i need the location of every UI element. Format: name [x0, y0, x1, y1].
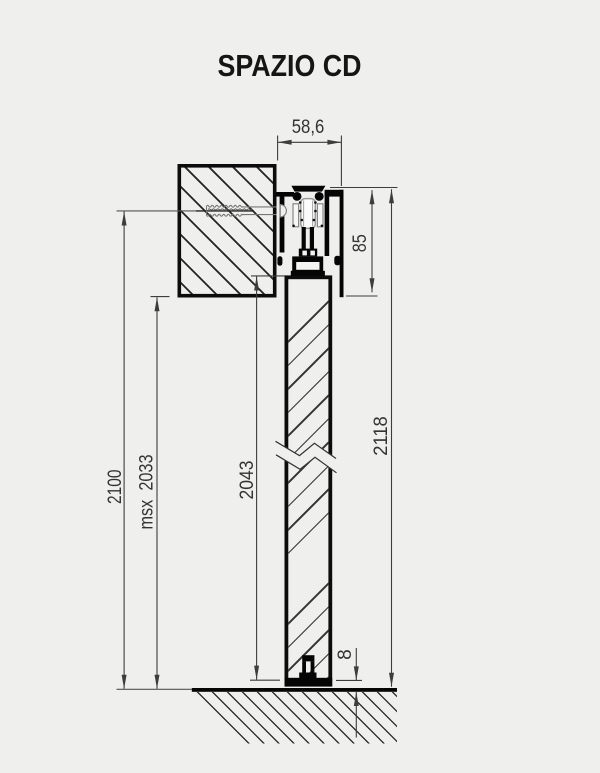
- svg-text:SPAZIO CD: SPAZIO CD: [218, 48, 362, 83]
- svg-text:8: 8: [335, 649, 356, 660]
- svg-text:2100: 2100: [105, 469, 126, 504]
- svg-text:85: 85: [350, 234, 371, 252]
- svg-text:58,6: 58,6: [292, 117, 325, 138]
- svg-text:2043: 2043: [237, 461, 258, 500]
- svg-text:msx 2033: msx 2033: [137, 455, 158, 530]
- svg-text:2118: 2118: [371, 416, 392, 456]
